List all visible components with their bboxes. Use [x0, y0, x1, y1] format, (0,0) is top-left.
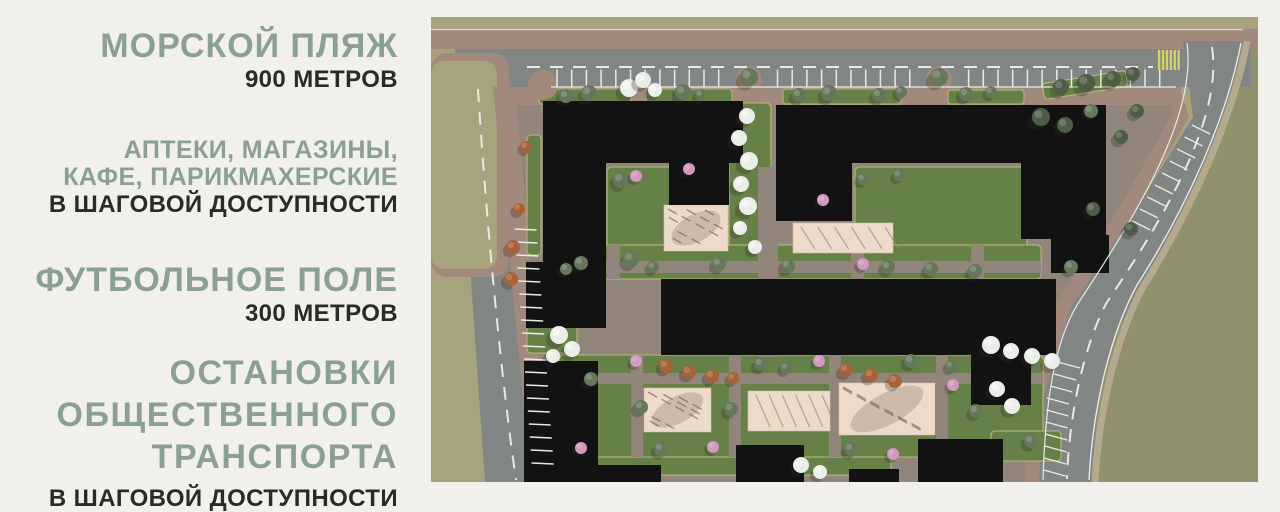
feature-transport-line1: ОСТАНОВКИ [0, 352, 398, 394]
feature-beach-title: МОРСКОЙ ПЛЯЖ [0, 26, 398, 66]
haze-overlay [431, 17, 1258, 482]
feature-football-distance: 300 МЕТРОВ [0, 300, 398, 327]
feature-services-line2: КАФЕ, ПАРИКМАХЕРСКИЕ [0, 164, 398, 191]
marketing-slide: { "page": { "background": "#f1f0ec" }, "… [0, 0, 1280, 482]
feature-beach-distance: 900 МЕТРОВ [0, 66, 398, 93]
feature-transport-line3: ТРАНСПОРТА [0, 436, 398, 478]
feature-football-title: ФУТБОЛЬНОЕ ПОЛЕ [0, 260, 398, 300]
features-panel: МОРСКОЙ ПЛЯЖ 900 МЕТРОВ АПТЕКИ, МАГАЗИНЫ… [0, 0, 400, 482]
feature-services-line1: АПТЕКИ, МАГАЗИНЫ, [0, 137, 398, 164]
site-plan-svg [431, 17, 1258, 482]
site-plan-render [431, 17, 1258, 482]
feature-services: АПТЕКИ, МАГАЗИНЫ, КАФЕ, ПАРИКМАХЕРСКИЕ В… [0, 137, 398, 218]
feature-transport: ОСТАНОВКИ ОБЩЕСТВЕННОГО ТРАНСПОРТА В ШАГ… [0, 352, 398, 512]
feature-transport-line2: ОБЩЕСТВЕННОГО [0, 394, 398, 436]
feature-services-note: В ШАГОВОЙ ДОСТУПНОСТИ [0, 191, 398, 218]
feature-transport-note-clipped: В ШАГОВОЙ ДОСТУПНОСТИ [0, 485, 398, 512]
feature-beach: МОРСКОЙ ПЛЯЖ 900 МЕТРОВ [0, 26, 398, 93]
feature-football: ФУТБОЛЬНОЕ ПОЛЕ 300 МЕТРОВ [0, 260, 398, 327]
